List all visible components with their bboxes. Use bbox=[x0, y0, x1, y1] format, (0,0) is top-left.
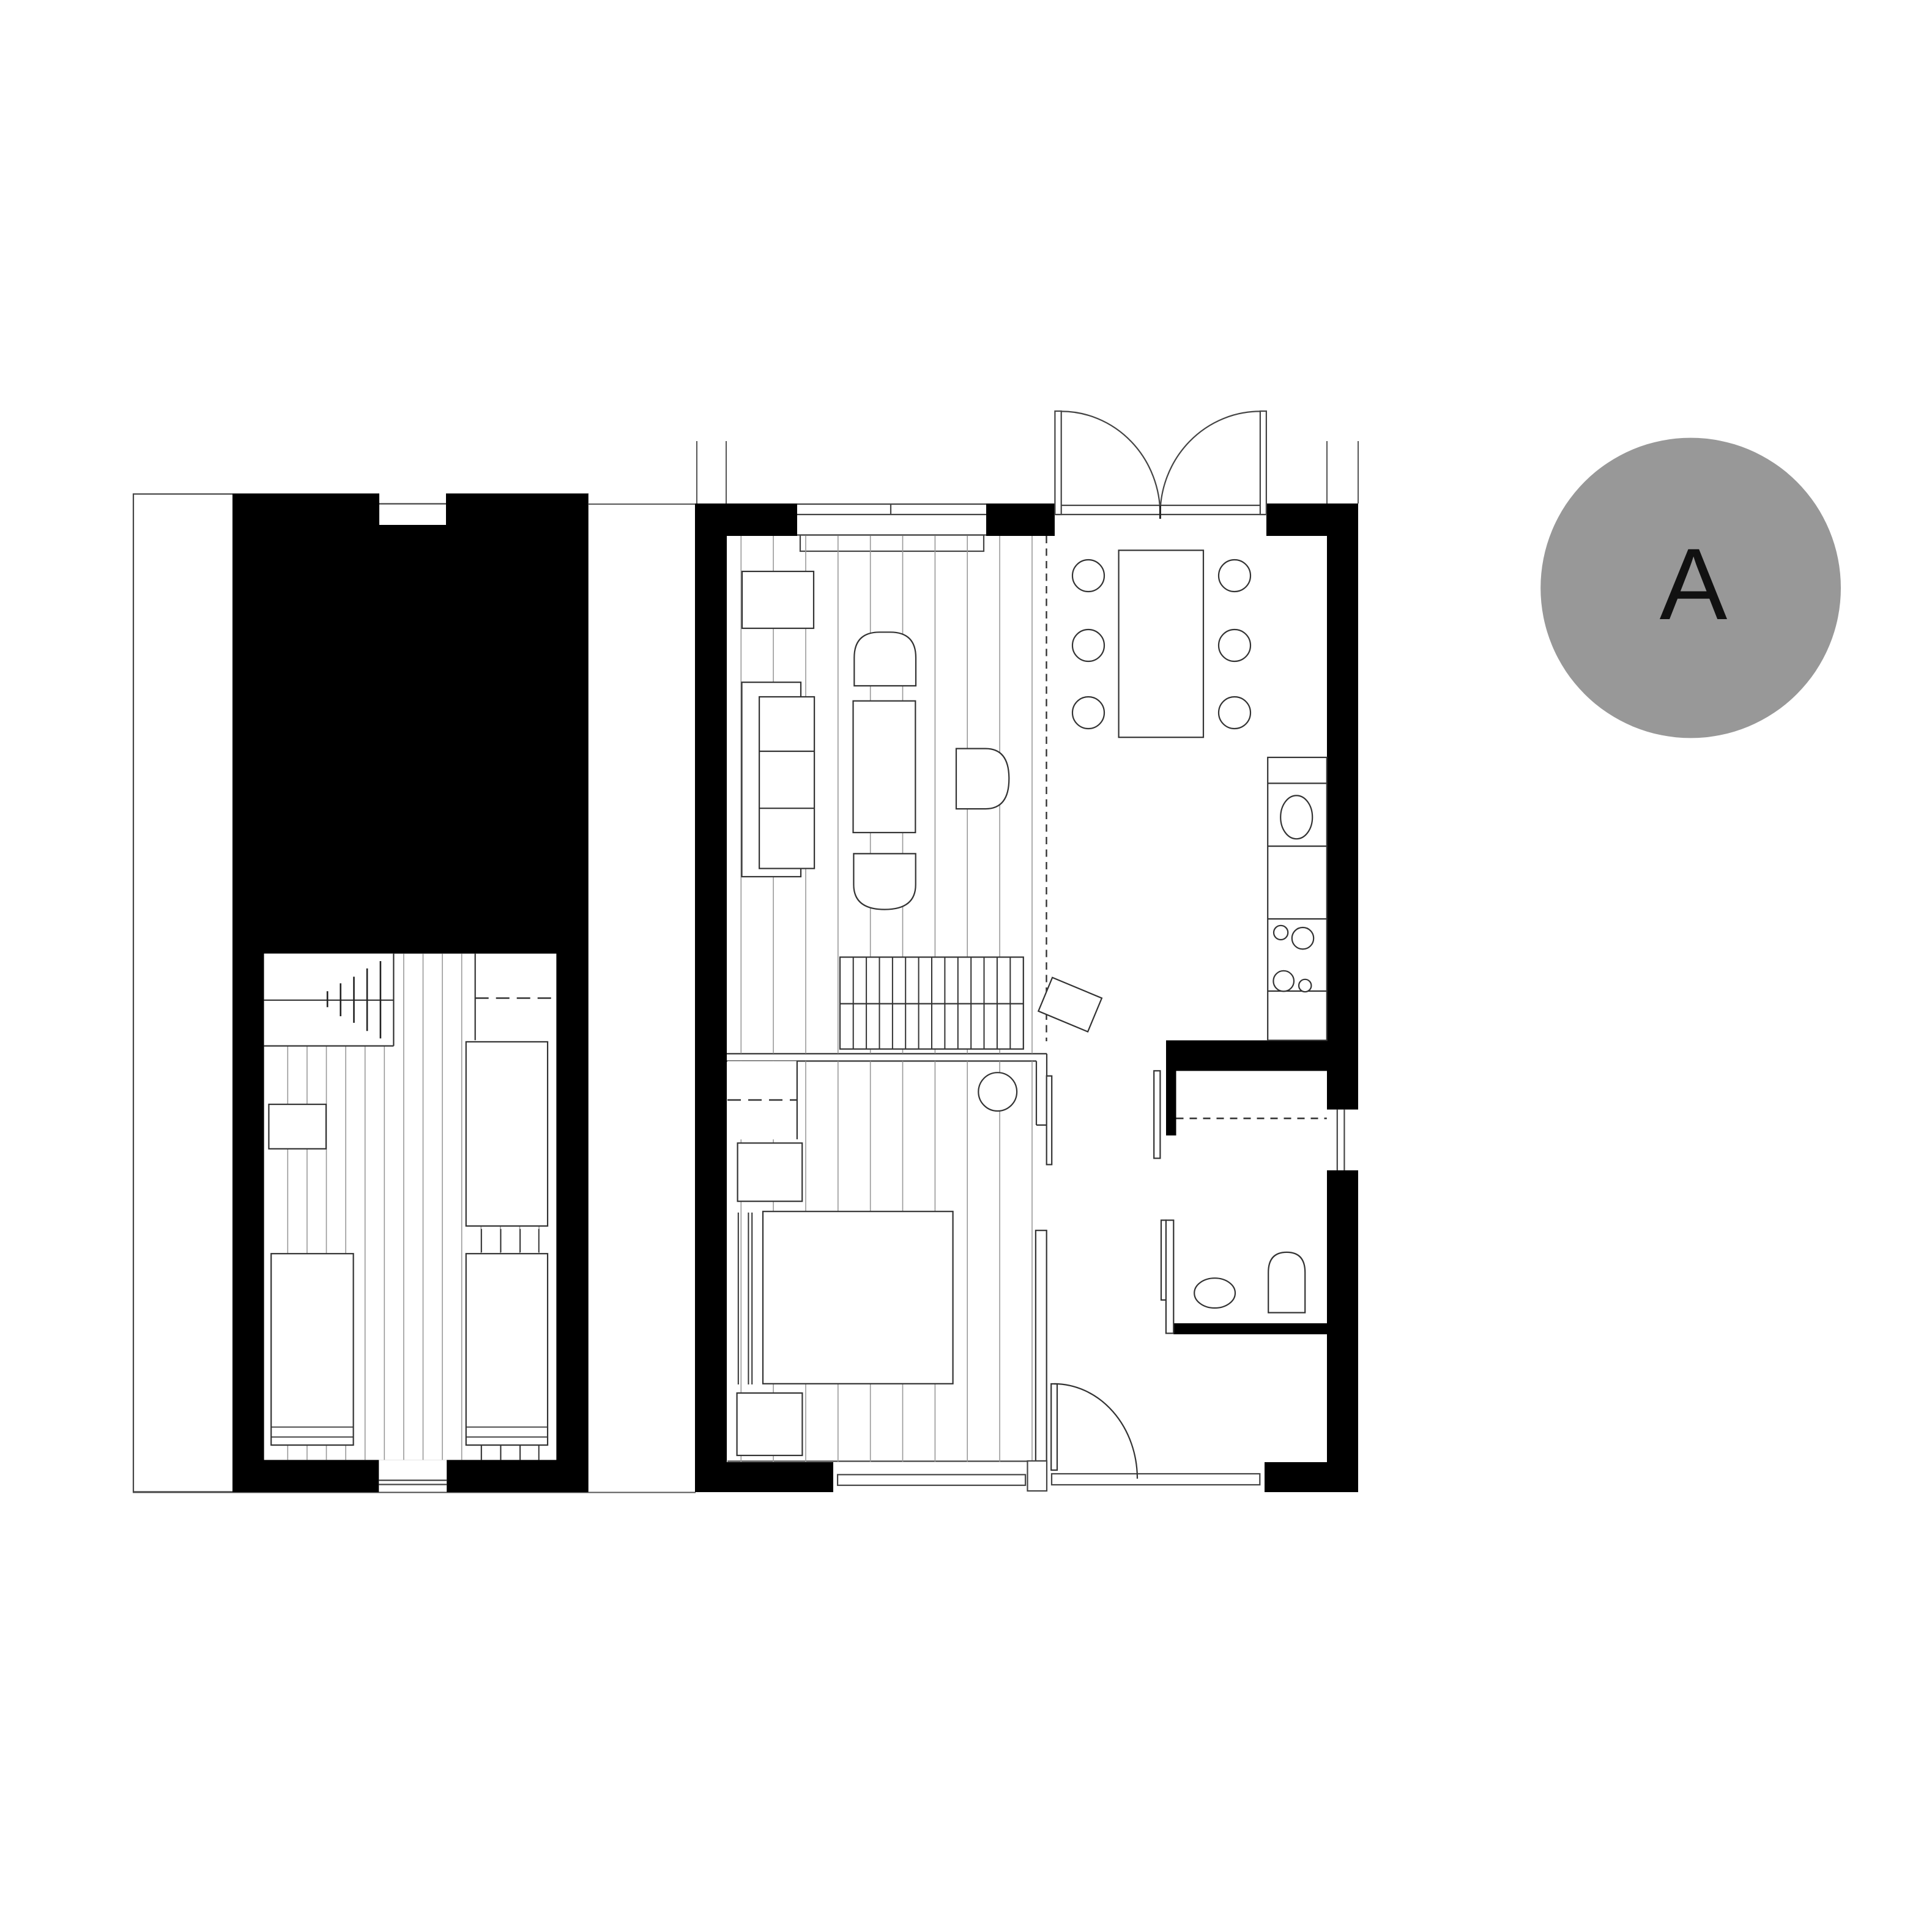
svg-text:A: A bbox=[1660, 528, 1728, 641]
